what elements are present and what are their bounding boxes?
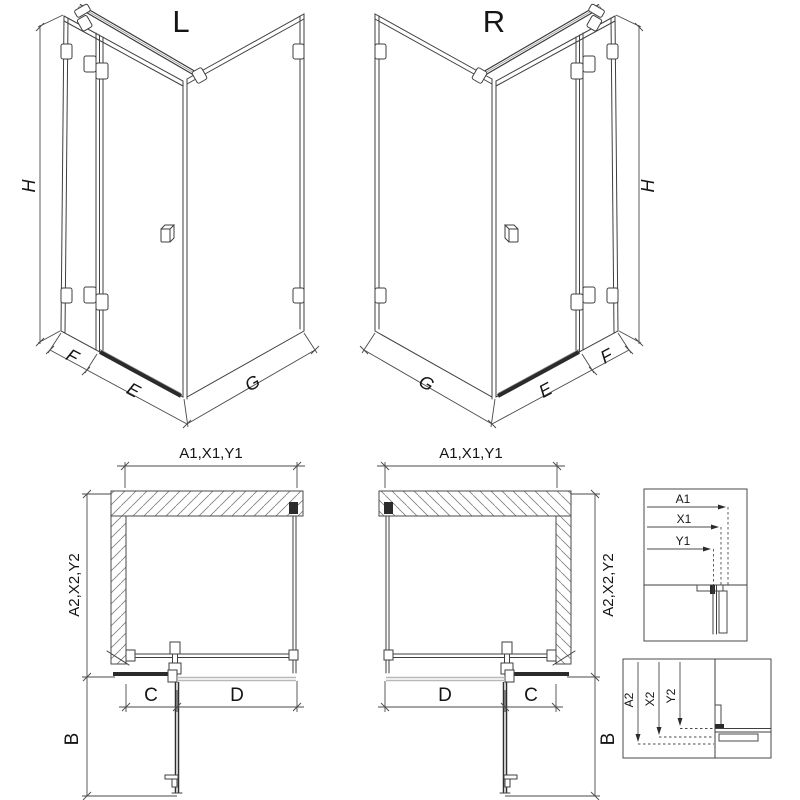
detail-depth-y2-label: Y2 xyxy=(664,688,678,703)
detail-width-y1-label: Y1 xyxy=(676,534,691,548)
dim-label-b-right: B xyxy=(598,733,619,746)
plan-width-dim-left: A1,X1,Y1 xyxy=(179,445,242,462)
iso-view-left xyxy=(36,4,319,428)
dim-label-d-left: D xyxy=(230,685,244,706)
plan-depth-dim-right: A2,X2,Y2 xyxy=(600,553,617,616)
iso-right-title: R xyxy=(483,4,505,39)
detail-depth-profile xyxy=(715,705,771,741)
dim-label-g-right: G xyxy=(415,371,437,395)
dim-label-c-right: C xyxy=(524,685,538,706)
dim-label-e-left: E xyxy=(123,378,144,402)
iso-view-right xyxy=(360,4,643,428)
plan-depth-dim-left: A2,X2,Y2 xyxy=(66,553,83,616)
dim-label-g-left: G xyxy=(241,371,263,395)
drawing-canvas: L R H H F E G F E G A1,X1,Y1 A1,X1,Y1 A2… xyxy=(0,0,800,800)
detail-depth-a2-label: A2 xyxy=(622,692,636,707)
detail-width-a1-label: A1 xyxy=(676,492,691,506)
plan-view-left xyxy=(82,462,305,800)
detail-inset-width xyxy=(644,489,747,641)
dim-label-e-right: E xyxy=(536,378,557,402)
iso-left-title: L xyxy=(172,4,189,39)
dim-label-h-right: H xyxy=(638,179,658,193)
detail-depth-x2-label: X2 xyxy=(643,691,657,706)
detail-width-x1-label: X1 xyxy=(677,512,692,526)
detail-width-profile xyxy=(697,585,727,634)
dim-label-c-left: C xyxy=(144,685,158,706)
dim-label-h-left: H xyxy=(19,179,39,193)
plan-view-right xyxy=(377,462,600,800)
dim-label-b-left: B xyxy=(62,733,83,746)
dim-label-f-right: F xyxy=(597,344,617,367)
dim-label-f-left: F xyxy=(63,345,83,368)
detail-inset-depth xyxy=(623,659,771,758)
shower-enclosure-technical-drawing: L R H H F E G F E G A1,X1,Y1 A1,X1,Y1 A2… xyxy=(0,0,800,800)
dim-label-d-right: D xyxy=(438,685,452,706)
plan-width-dim-right: A1,X1,Y1 xyxy=(439,445,502,462)
